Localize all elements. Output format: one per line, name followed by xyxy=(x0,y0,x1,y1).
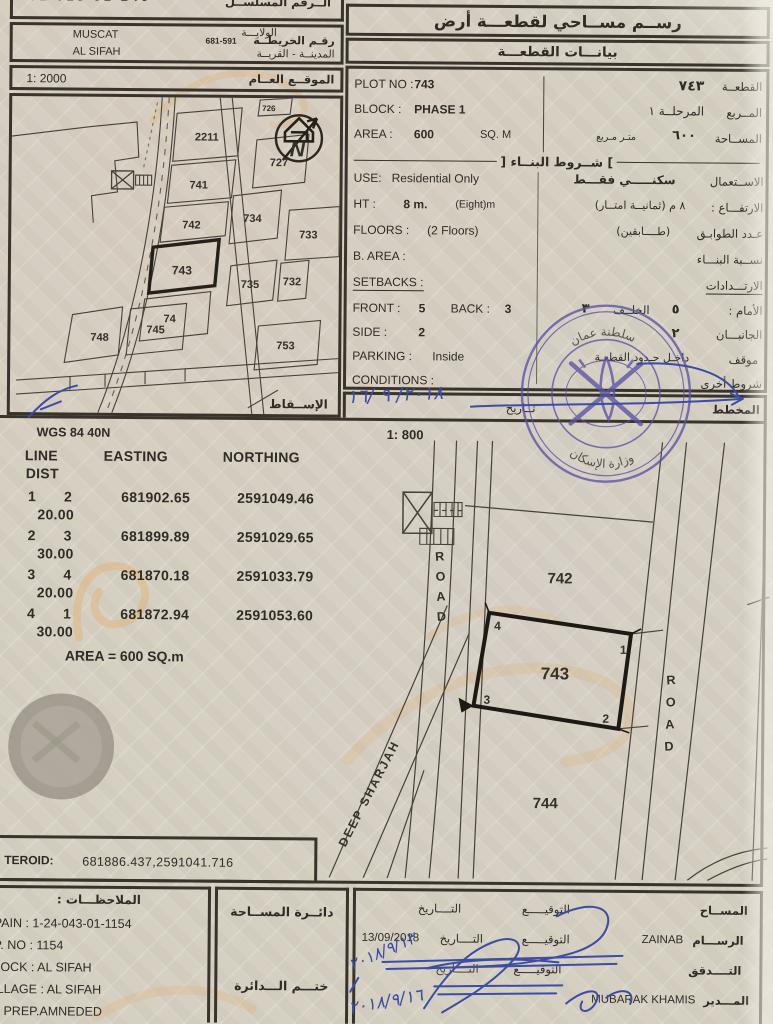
serial-label: الــرقم المسلســل xyxy=(225,0,331,10)
site-map-box: N 2211 741 742 743 74 727 726 734 733 73… xyxy=(7,93,344,418)
parking-label: PARKING : xyxy=(352,349,412,363)
svg-text:735: 735 xyxy=(241,279,259,291)
manager-name: MUBARAK KHAMIS xyxy=(591,994,695,1007)
front-ar-label: الأمام : xyxy=(728,304,762,318)
svg-text:2211: 2211 xyxy=(195,131,219,143)
front-label: FRONT : xyxy=(353,301,401,315)
svg-text:D: D xyxy=(436,609,446,624)
height-note: (Eight)m xyxy=(455,199,495,211)
notes-cell: الملاحظـــات : PAIN : 1-24-043-01-1154 P… xyxy=(0,885,211,1023)
plot-no-ar-label: القطعــة xyxy=(722,80,763,94)
block-ar-label: المــربع xyxy=(726,106,762,120)
serial-number-row: 01 013 01 140 الــرقم المسلســل xyxy=(10,0,344,22)
plot-info-divider xyxy=(543,76,545,152)
note-line: d PREP.AMNEDED xyxy=(0,1004,102,1019)
svg-text:727: 727 xyxy=(270,157,288,169)
side-value: 2 xyxy=(418,325,425,339)
area-value: 600 xyxy=(414,127,434,141)
col-easting: EASTING xyxy=(77,448,195,465)
table-row: 23681899.892591029.6530.00 xyxy=(10,527,350,566)
survey-department-cell: دائــرة المســاحة ختـــم الـــدائرة xyxy=(214,887,349,1024)
svg-text:726: 726 xyxy=(262,104,276,113)
surveyor-role-label: المســاح xyxy=(700,903,748,917)
svg-text:A: A xyxy=(665,717,675,732)
svg-text:732: 732 xyxy=(283,276,301,288)
plot-no-label: PLOT NO : xyxy=(354,77,413,91)
parking-ar-label: موقف xyxy=(729,353,759,367)
svg-text:734: 734 xyxy=(243,213,262,225)
height-label: HT : xyxy=(353,197,376,211)
use-ar-value: سكنـــــي فقـــط xyxy=(573,172,675,187)
svg-text:3: 3 xyxy=(483,693,490,707)
floors-label: FLOORS : xyxy=(353,223,409,237)
manager-role-label: المـــدير xyxy=(703,994,749,1008)
height-ar-value: ٨ م (ثمانيــة امتــار) xyxy=(595,199,686,213)
north-compass-icon: N xyxy=(276,115,322,161)
side-ar-label: الجانبـــان xyxy=(716,328,762,342)
col-line: LINE xyxy=(10,447,72,463)
svg-text:743: 743 xyxy=(172,263,192,277)
coordinates-header-row: LINE EASTING NORTHING DIST xyxy=(10,447,350,486)
signature-label: التوقيـــــع xyxy=(522,902,570,916)
area-ar-label: المســاحة xyxy=(715,132,762,146)
date-label: التــــاريخ xyxy=(440,931,483,945)
embossed-seal xyxy=(8,693,115,800)
draftsman-name: ZAINAB xyxy=(642,934,684,946)
note-line: ILLAGE : AL SIFAH xyxy=(0,982,101,997)
official-stamp: سلطنة عمان وزارة الإسكان xyxy=(518,301,695,488)
side-label: SIDE : xyxy=(352,325,387,339)
building-conditions-header: شــروط البنــاء xyxy=(354,153,760,171)
area-ar-unit: متـر مـربع xyxy=(596,132,636,143)
table-row: 34681870.182591033.7920.00 xyxy=(9,566,349,605)
city-value: AL SIFAH xyxy=(73,46,121,58)
date-label: التــــاريخ xyxy=(435,961,478,975)
centroid-row: TEROID: 681886.437,2591041.716 xyxy=(0,835,317,884)
projection-label: الإســقاط xyxy=(269,397,328,411)
col-northing: NORTHING xyxy=(199,449,323,466)
back-value: 3 xyxy=(505,302,512,316)
table-row: 41681872.942591053.6030.00 xyxy=(9,605,349,644)
general-location-row: 1: 2000 الموقــع العــام xyxy=(9,65,343,93)
height-ar-label: الارتفـــاع : xyxy=(711,201,763,215)
svg-text:74: 74 xyxy=(163,313,176,325)
floors-ar-value: (طــــابقين) xyxy=(616,225,670,238)
wilaya-value: MUSCAT xyxy=(73,29,119,41)
back-label: BACK : xyxy=(451,301,490,315)
svg-text:744: 744 xyxy=(533,795,559,812)
site-map: N 2211 741 742 743 74 727 726 734 733 73… xyxy=(10,96,340,415)
setbacks-label: SETBACKS : xyxy=(353,275,424,292)
block-value: PHASE 1 xyxy=(414,102,465,116)
height-value: 8 m. xyxy=(403,197,427,211)
svg-text:وزارة الإسكان: وزارة الإسكان xyxy=(567,446,636,473)
plot-no-ar-value: ٧٤٣ xyxy=(679,78,705,94)
centroid-value: 681886.437,2591041.716 xyxy=(82,855,233,870)
map-number-value: 681-591 xyxy=(205,36,236,46)
area-unit: SQ. M xyxy=(480,129,511,141)
svg-text:D: D xyxy=(664,739,674,754)
note-line: PAIN : 1-24-043-01-1154 xyxy=(0,916,132,931)
block-ar-value: المرحلــة ١ xyxy=(648,104,704,118)
conditions-ar-label: شروط أخرى xyxy=(700,376,762,390)
parking-value: Inside xyxy=(432,349,464,363)
plot-data-subtitle: بيانـــات القطعـــة xyxy=(349,43,767,62)
draftsman-role-label: الرســـام xyxy=(692,933,743,947)
built-area-label: B. AREA : xyxy=(353,249,406,263)
checker-role-label: التــــدقق xyxy=(688,963,741,977)
svg-text:1: 1 xyxy=(620,643,627,657)
svg-text:2: 2 xyxy=(602,712,609,726)
scanned-survey-document: 01 013 01 140 الــرقم المسلســل MUSCAT A… xyxy=(0,0,773,1024)
built-area-ar-label: نســبة البنـــاء xyxy=(697,252,763,267)
svg-text:O: O xyxy=(435,569,446,584)
general-location-label: الموقــع العــام xyxy=(249,72,335,87)
planner-label: المخطط xyxy=(712,403,760,417)
svg-text:748: 748 xyxy=(90,332,108,344)
use-ar-label: الاســتعمال xyxy=(710,175,764,189)
datum-label: WGS 84 40N xyxy=(37,425,111,440)
centroid-label: TEROID: xyxy=(4,853,53,867)
note-line: LOCK : AL SIFAH xyxy=(0,960,92,975)
note-line: P. NO : 1154 xyxy=(0,938,63,953)
svg-text:742: 742 xyxy=(547,570,572,587)
svg-text:O: O xyxy=(665,695,676,710)
svg-text:742: 742 xyxy=(182,219,200,231)
svg-text:R: R xyxy=(435,549,445,564)
site-map-scale: 1: 2000 xyxy=(26,71,66,85)
svg-text:745: 745 xyxy=(146,324,164,336)
city-label: المدينــة - القريــة xyxy=(257,48,335,61)
front-value: 5 xyxy=(419,301,426,315)
signature-label: التوقيـــــع xyxy=(513,962,561,976)
svg-text:741: 741 xyxy=(190,179,208,191)
area-label: AREA : xyxy=(354,127,393,141)
svg-text:N: N xyxy=(290,138,306,161)
road-left-label: R O A D xyxy=(432,549,450,624)
svg-text:733: 733 xyxy=(299,229,317,241)
svg-text:A: A xyxy=(436,589,446,604)
use-label: USE: xyxy=(354,171,382,185)
floors-value: (2 Floors) xyxy=(427,223,478,237)
area-ar-value: ٦٠٠ xyxy=(672,128,696,143)
road-right-label: R O A D xyxy=(660,673,680,754)
wilaya-map-row: MUSCAT AL SIFAH الولايـــة 681-591 رقـم … xyxy=(10,22,344,65)
svg-text:753: 753 xyxy=(276,340,294,352)
date-label: التــــاريخ xyxy=(418,901,461,915)
document-title: رســم مســاحي لقطعـــة أرض xyxy=(349,11,767,33)
area-note: AREA = 600 SQ.m xyxy=(65,647,349,665)
planner-date-handwritten: ٢٠١٨/ ٩ /١٦ xyxy=(346,382,443,408)
svg-text:R: R xyxy=(666,673,676,688)
plot-no-value: 743 xyxy=(414,77,434,91)
use-value: Residential Only xyxy=(392,171,479,186)
col-dist: DIST xyxy=(10,465,74,482)
serial-value: 01 013 01 140 xyxy=(29,0,151,4)
detail-map: 742 743 744 4 1 2 3 R O A D R O A D DEEP… xyxy=(327,440,770,881)
deep-sharjah-label: DEEP SHARJAH xyxy=(336,738,403,849)
notes-label: الملاحظـــات : xyxy=(0,892,208,908)
floors-ar-label: عـدد الطوابـق xyxy=(697,226,764,241)
table-row: 12681902.652591049.4620.00 xyxy=(10,488,350,527)
department-stamp-label: ختـــم الـــدائرة xyxy=(217,978,345,994)
map-number-label: رقـم الخريطــة xyxy=(253,34,335,48)
coordinates-table: LINE EASTING NORTHING DIST 12681902.6525… xyxy=(9,447,351,666)
block-label: BLOCK : xyxy=(354,102,401,116)
svg-text:4: 4 xyxy=(494,619,501,633)
plot-data-subtitle-box: بيانـــات القطعـــة xyxy=(346,38,770,67)
document-title-box: رســم مســاحي لقطعـــة أرض xyxy=(346,4,770,39)
signature-label: التوقيـــــع xyxy=(522,932,570,946)
setbacks-ar-label: الارتـــدادات xyxy=(706,279,763,295)
svg-text:743: 743 xyxy=(541,664,570,683)
survey-department-label: دائــرة المســاحة xyxy=(218,904,346,920)
